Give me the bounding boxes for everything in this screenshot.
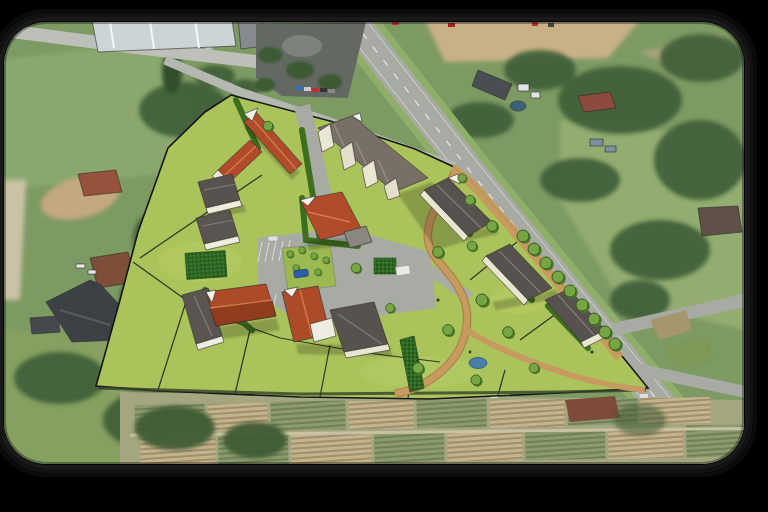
trailer-1 <box>76 264 85 268</box>
white-van <box>396 265 411 276</box>
pond <box>469 358 487 369</box>
shed-blue-1 <box>590 139 603 146</box>
rust-roof-shed <box>565 396 620 422</box>
dark-shed <box>30 316 60 334</box>
blue-car <box>294 269 309 278</box>
allotment-gardens <box>120 390 747 467</box>
red-roof-house-in-trees <box>578 92 616 112</box>
photomontage-frame <box>0 0 768 512</box>
trailer-2 <box>88 270 96 274</box>
community-garden-hatch <box>185 251 227 280</box>
small-basin <box>510 101 526 111</box>
hatch-patch-small <box>374 258 396 274</box>
farm-house-red <box>78 170 122 196</box>
aerial-scene <box>0 0 768 512</box>
shed-white-2 <box>531 92 540 98</box>
aerial-photo <box>0 13 747 467</box>
white-car <box>268 236 278 241</box>
house-right-bottom <box>698 206 742 236</box>
shed-blue-2 <box>605 146 616 152</box>
shed-white-1 <box>518 84 529 91</box>
